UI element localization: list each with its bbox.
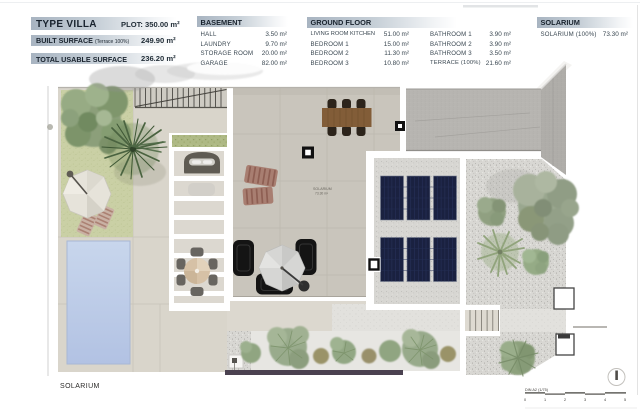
svg-text:0: 0 xyxy=(524,398,526,402)
svg-text:73.30 m²: 73.30 m² xyxy=(315,192,329,196)
svg-text:4: 4 xyxy=(604,398,606,402)
svg-text:3: 3 xyxy=(584,398,586,402)
svg-text:SOLARIUM: SOLARIUM xyxy=(313,187,332,191)
svg-text:1: 1 xyxy=(544,398,546,402)
svg-text:2: 2 xyxy=(564,398,566,402)
svg-text:5: 5 xyxy=(624,398,626,402)
svg-text:SOLARIUM: SOLARIUM xyxy=(60,383,100,390)
svg-text:DIN A2 (1/75): DIN A2 (1/75) xyxy=(525,388,549,392)
